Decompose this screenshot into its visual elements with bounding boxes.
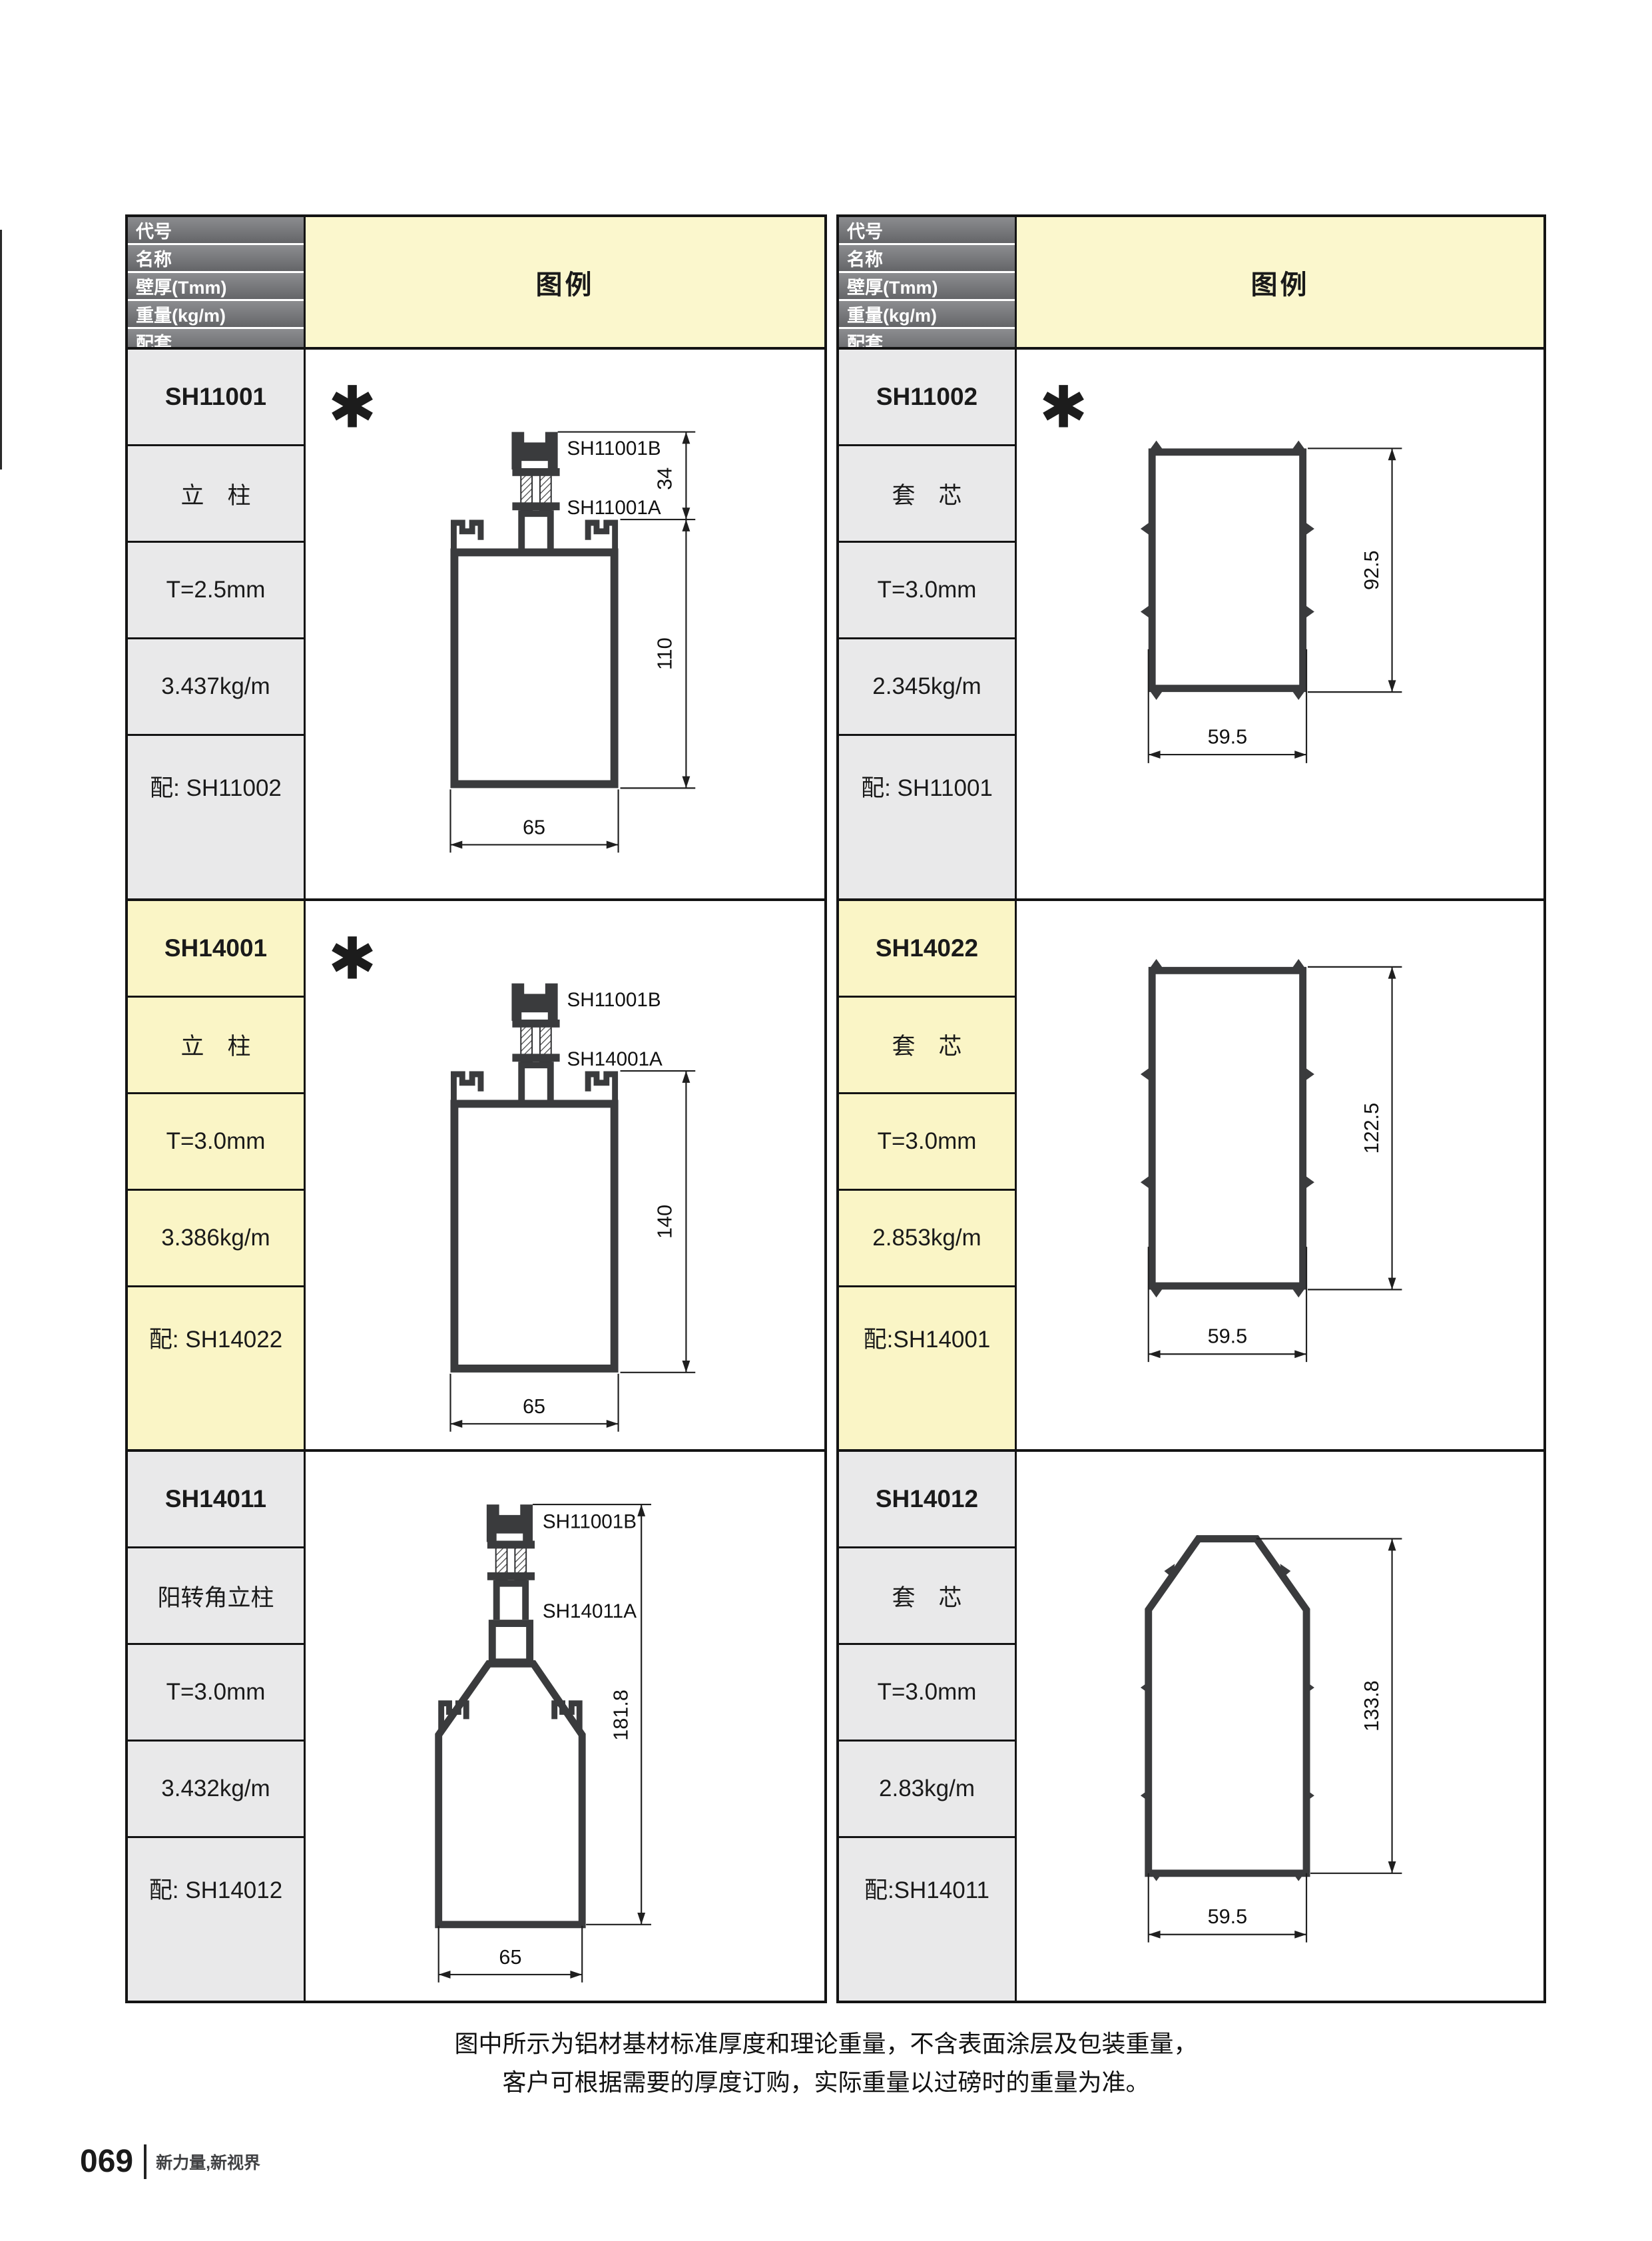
product-name: 阳转角立柱 [128,1548,304,1645]
footer-divider [144,2144,146,2179]
clamp-plate [487,1541,535,1549]
header-row-weight: 重量(kg/m) [128,301,304,327]
product-info-sh14001: SH14001 立 柱 T=3.0mm 3.386kg/m 配: SH14022 [128,898,304,1450]
header-row-name: 名称 [839,245,1015,271]
side-lug [1305,1068,1314,1081]
part-label-a: SH14011A [543,1600,637,1622]
page-number: 069 [80,2143,133,2180]
product-match: 配:SH14011 [839,1838,1015,2001]
body-tube-shape [450,549,618,789]
dim-height-label: 110 [654,637,677,670]
product-thickness: T=3.0mm [839,1094,1015,1191]
product-match: 配:SH14001 [839,1287,1015,1450]
clamp-plate [487,1572,535,1580]
header-row-weight: 重量(kg/m) [839,301,1015,327]
diagram-cell-sh11001: ✱ 34 110 SH11001B [304,347,824,898]
profile-diagram-sh14012: 133.8 59.5 [1017,1452,1543,2001]
product-table-left: 代号 名称 壁厚(Tmm) 重量(kg/m) 配套 图例 SH11001 立 柱… [125,214,827,2003]
product-name: 立 柱 [128,998,304,1094]
side-lug [1305,605,1314,619]
dim-height-label: 140 [654,1205,677,1239]
hook-flange-left [453,1074,481,1102]
dim-top-label: 34 [654,468,677,490]
clamp-plate [512,468,559,476]
product-weight: 3.386kg/m [128,1191,304,1287]
body-tube-shape [450,1100,618,1372]
asterisk-icon: ✱ [1039,376,1088,440]
product-info-sh11001: SH11001 立 柱 T=2.5mm 3.437kg/m 配: SH11002 [128,347,304,898]
dim-height-label: 92.5 [1360,550,1383,590]
arrowhead [1388,1277,1396,1289]
product-code: SH11001 [128,350,304,446]
asterisk-icon: ✱ [328,926,377,991]
part-label-b: SH11001B [567,438,661,460]
clamp-plate [512,1054,559,1062]
arrowhead [1388,680,1396,692]
product-info-sh11002: SH11002 套 芯 T=3.0mm 2.345kg/m 配: SH11001 [839,347,1015,898]
product-weight: 2.345kg/m [839,639,1015,736]
header-row-thickness: 壁厚(Tmm) [128,273,304,299]
apex-box-shape [489,1620,533,1666]
body-tube-shape [1149,448,1306,692]
product-thickness: T=2.5mm [128,543,304,639]
arrowhead [1388,1861,1396,1873]
side-lug [1141,605,1150,619]
arrowhead [682,507,690,519]
profile-diagram-sh14011: 181.8 SH11001B SH14011A 65 [306,1452,824,2001]
product-name: 套 芯 [839,1548,1015,1645]
arrowhead [1388,448,1396,460]
arrowhead [1149,1931,1161,1939]
stem-shape [518,1062,553,1101]
product-name: 立 柱 [128,446,304,543]
corner-lug [1150,440,1163,450]
side-lug [1141,1175,1150,1189]
product-info-sh14022: SH14022 套 芯 T=3.0mm 2.853kg/m 配:SH14001 [839,898,1015,1450]
table-header-left: 代号 名称 壁厚(Tmm) 重量(kg/m) 配套 [128,217,304,347]
side-lug [1141,1068,1150,1081]
body-tube-shape [1149,1539,1306,1873]
page-edge-mark [0,230,2,470]
part-label-a: SH11001A [567,497,661,519]
header-row-code: 代号 [128,217,304,243]
body-tube-shape [1149,967,1306,1289]
product-code: SH14011 [128,1452,304,1548]
product-match: 配: SH14022 [128,1287,304,1450]
diagram-cell-sh11002: ✱ 92.5 59.5 [1015,347,1543,898]
product-match: 配: SH11002 [128,736,304,898]
profile-diagram-sh11002: ✱ 92.5 59.5 [1017,350,1543,898]
arrowhead [1294,1350,1306,1358]
arrowhead [1149,1350,1161,1358]
arrowhead [1294,751,1306,759]
side-lug [1305,522,1314,535]
asterisk-icon: ✱ [328,376,377,440]
table-header-right: 代号 名称 壁厚(Tmm) 重量(kg/m) 配套 [839,217,1015,347]
arrowhead [607,840,619,848]
product-code: SH14001 [128,901,304,998]
arrowhead [439,1971,451,1979]
arrowhead [682,519,690,531]
legend-header-left: 图例 [304,217,824,347]
dim-width-label: 59.5 [1208,725,1248,748]
product-code: SH14022 [839,901,1015,998]
arrowhead [450,1420,462,1428]
dim-height-label: 122.5 [1360,1102,1383,1153]
catalog-page: 代号 名称 壁厚(Tmm) 重量(kg/m) 配套 图例 SH11001 立 柱… [0,0,1652,2241]
part-label-a: SH14001A [567,1048,663,1070]
arrowhead [1149,751,1161,759]
product-table-right: 代号 名称 壁厚(Tmm) 重量(kg/m) 配套 图例 SH11002 套 芯… [836,214,1546,2003]
arrowhead [682,1071,690,1083]
arrowhead [682,1361,690,1373]
product-info-sh14012: SH14012 套 芯 T=3.0mm 2.83kg/m 配:SH14011 [839,1449,1015,2001]
product-match: 配: SH11001 [839,736,1015,898]
product-thickness: T=3.0mm [839,543,1015,639]
profile-diagram-sh14001: ✱ 140 SH11001B SH14001A [306,901,824,1450]
part-label-b: SH11001B [543,1511,637,1533]
footer-slogan: 新力量,新视界 [156,2150,260,2174]
header-row-code: 代号 [839,217,1015,243]
side-lug [1141,522,1150,535]
arrowhead [607,1420,619,1428]
header-row-thickness: 壁厚(Tmm) [839,273,1015,299]
clamp-plate [512,502,559,510]
dim-width-label: 59.5 [1208,1905,1248,1928]
page-footer: 069 新力量,新视界 [80,2143,260,2180]
corner-lug [1292,440,1305,450]
hook-flange-left [453,523,481,550]
arrowhead [450,840,462,848]
dim-width-label: 65 [523,1395,545,1418]
arrowhead [1388,1539,1396,1551]
product-weight: 2.853kg/m [839,1191,1015,1287]
profile-diagram-sh11001: ✱ 34 110 SH11001B [306,350,824,898]
corner-lug [1292,1288,1305,1297]
arrowhead [1388,967,1396,979]
product-weight: 3.432kg/m [128,1742,304,1838]
diagram-cell-sh14001: ✱ 140 SH11001B SH14001A [304,898,824,1450]
diagram-cell-sh14011: 181.8 SH11001B SH14011A 65 [304,1449,824,2001]
corner-lug [1150,1288,1163,1297]
stem-shape [493,1580,529,1620]
side-lug [1305,1175,1314,1189]
product-thickness: T=3.0mm [128,1094,304,1191]
diagram-cell-sh14012: 133.8 59.5 [1015,1449,1543,2001]
product-weight: 3.437kg/m [128,639,304,736]
arrowhead [682,432,690,444]
arrowhead [637,1504,645,1516]
hook-flange-right [588,1074,615,1102]
arrowhead [1294,1931,1306,1939]
dim-height-label: 181.8 [609,1690,632,1741]
diagram-cell-sh14022: 122.5 59.5 [1015,898,1543,1450]
corner-lug [1150,959,1163,968]
profile-diagram-sh14022: 122.5 59.5 [1017,901,1543,1450]
dim-width-label: 65 [523,816,545,839]
arrowhead [637,1913,645,1925]
cap-profile-shape [511,432,557,470]
product-thickness: T=3.0mm [128,1645,304,1742]
arrowhead [682,777,690,789]
corner-lug [1292,691,1305,700]
header-row-name: 名称 [128,245,304,271]
note-line-1: 图中所示为铝材基材标准厚度和理论重量，不含表面涂层及包装重量， [0,2025,1652,2059]
product-thickness: T=3.0mm [839,1645,1015,1742]
stem-shape [518,510,553,549]
product-info-sh14011: SH14011 阳转角立柱 T=3.0mm 3.432kg/m 配: SH140… [128,1449,304,2001]
product-name: 套 芯 [839,998,1015,1094]
note-line-2: 客户可根据需要的厚度订购，实际重量以过磅时的重量为准。 [0,2063,1652,2098]
product-match: 配: SH14012 [128,1838,304,2001]
legend-header-right: 图例 [1015,217,1543,347]
product-name: 套 芯 [839,446,1015,543]
part-label-b: SH11001B [567,989,661,1011]
product-weight: 2.83kg/m [839,1742,1015,1838]
dim-width-label: 59.5 [1208,1325,1248,1347]
hook-flange-right [588,523,615,550]
cap-profile-shape [511,983,557,1020]
cap-profile-shape [487,1504,533,1542]
dim-width-label: 65 [499,1946,521,1969]
clamp-plate [512,1020,559,1028]
corner-lug [1292,959,1305,968]
product-code: SH11002 [839,350,1015,446]
arrowhead [570,1971,582,1979]
product-code: SH14012 [839,1452,1015,1548]
dim-height-label: 133.8 [1360,1681,1383,1732]
corner-lug [1150,691,1163,700]
